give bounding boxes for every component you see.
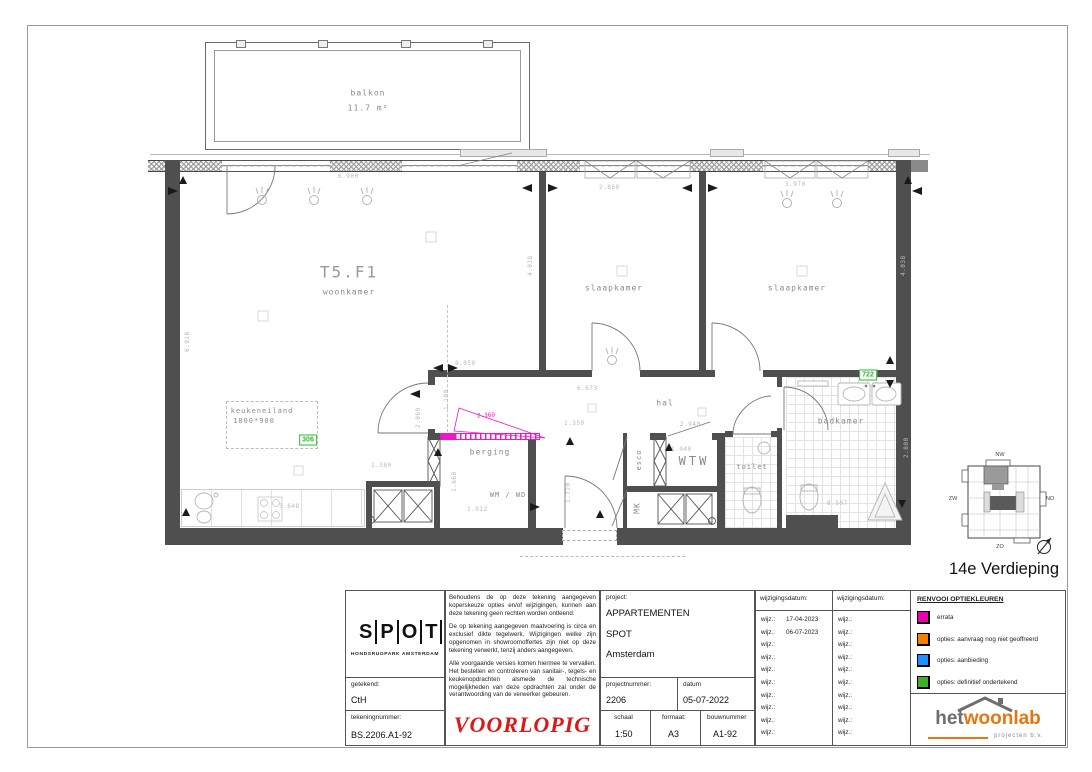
dimension-label: 3.648 — [279, 503, 300, 510]
bathroom-washbasin — [872, 383, 901, 405]
bedroom2-door-arc — [712, 323, 760, 371]
disclaimer-paragraph: Alle voorgaande versies komen hiermee te… — [449, 660, 596, 699]
reference-arrow — [168, 176, 922, 518]
wijz-row-label: wijz.: — [838, 679, 852, 686]
brand-woonlab: woonlab — [964, 708, 1041, 729]
disclaimer-text: Behoudens de op deze tekening aangegeven… — [449, 594, 596, 705]
dimension-label: 2.800 — [903, 437, 910, 458]
bathroom-wc — [800, 484, 818, 510]
schaal-label: schaal — [614, 714, 633, 721]
spot-logo-letter: P — [377, 620, 398, 644]
wijz-row-label: wijz.: — [761, 616, 775, 623]
spot-logo-letter: S — [356, 620, 377, 644]
balcony-label: balkon — [351, 89, 386, 98]
legend-label: opties: definitief ondertekend — [937, 679, 1018, 686]
brand-het: het — [935, 708, 964, 729]
getekend-label: getekend: — [351, 681, 380, 688]
datum-label: datum — [683, 681, 701, 688]
room-label-esco: esco — [635, 450, 643, 471]
kitchen-sink — [195, 493, 218, 523]
dimension-label: 1.350 — [564, 420, 585, 427]
legend-label: errata — [937, 614, 953, 621]
toilet-wc — [743, 487, 761, 513]
toilet-basin — [758, 442, 770, 454]
formaat-value: A3 — [668, 729, 679, 739]
mk-door-leaf — [612, 490, 627, 526]
formaat-label: formaat: — [662, 714, 686, 721]
wijz-date-value: 06-07-2023 — [786, 629, 818, 636]
room-label-bedroom2: slaapkamer — [768, 284, 826, 293]
shaft-box — [658, 494, 716, 525]
dimension-label: 8.050 — [455, 360, 476, 367]
bouwnummer-value: A1-92 — [713, 729, 737, 739]
legend-swatch — [917, 676, 930, 689]
room-label-living: woonkamer — [323, 288, 375, 297]
drawing-sheet: balkon 11.7 m² T5.F1 woonkamer slaapkame… — [0, 0, 1092, 772]
wijz-row-label: wijz.: — [838, 654, 852, 661]
wijz-row-label: wijz.: — [838, 641, 852, 648]
room-label-mk: MK — [633, 502, 642, 514]
dimension-label: 6.673 — [577, 385, 598, 392]
dimension-label: 2.940 — [680, 421, 701, 428]
wijz-row-label: wijz.: — [838, 717, 852, 724]
dimension-label: 1.012 — [467, 506, 488, 513]
toilet-door-arc — [733, 396, 771, 434]
legend-label: opties: aanbieding — [937, 657, 988, 664]
legend-swatch — [917, 633, 930, 646]
wijz-date-value: 17-04-2023 — [786, 616, 818, 623]
riser-shaft — [428, 437, 440, 486]
errata-triangle — [454, 408, 545, 438]
legend-swatch — [917, 654, 930, 667]
divider — [832, 610, 911, 611]
tilt-window-line — [457, 153, 512, 166]
locator-core — [990, 496, 1016, 510]
bathroom-shelf — [798, 381, 828, 386]
dimension-label: 1.100 — [443, 389, 450, 410]
wijz-row-label: wijz.: — [761, 641, 775, 648]
wijz-row-label: wijz.: — [838, 629, 852, 636]
dimension-label: 4.038 — [527, 255, 534, 276]
room-label-wtw: WTW — [679, 454, 710, 468]
room-label-toilet: toilet — [736, 463, 767, 471]
floor-title: 14e Verdieping — [942, 560, 1066, 579]
room-label-wmwd: WM / WD — [490, 491, 527, 499]
project-line: SPOT — [606, 629, 632, 640]
riser-shaft — [654, 437, 666, 486]
divider — [755, 610, 833, 611]
dimension-label: 1.720 — [565, 482, 572, 503]
wijzigingsdatum-header: wijzigingsdatum: — [837, 595, 885, 602]
dimension-label: 1.040 — [671, 446, 692, 453]
option-tag-kitchen: 306 — [299, 435, 317, 446]
wijzigingsdatum-header: wijzigingsdatum: — [760, 595, 808, 602]
project-label: project: — [606, 594, 627, 601]
bedroom1-door-arc — [592, 323, 640, 371]
wijz-row-label: wijz.: — [761, 629, 775, 636]
dimension-label: 2.060 — [415, 407, 422, 428]
room-label-bathroom: badkamer — [818, 417, 865, 426]
disclaimer-paragraph: Behoudens de op deze tekening aangegeven… — [449, 594, 596, 617]
disclaimer-paragraph: De op tekening aangegeven maatvoering is… — [449, 623, 596, 654]
wijz-row-label: wijz.: — [838, 666, 852, 673]
getekend-value: CtH — [351, 695, 367, 705]
wijz-row-label: wijz.: — [761, 666, 775, 673]
unit-code-label: T5.F1 — [320, 263, 378, 282]
errata-dimension: 2.360 — [477, 412, 495, 420]
wijz-row-label: wijz.: — [761, 679, 775, 686]
shaft-box — [368, 490, 433, 524]
dimension-label: 1.660 — [451, 471, 458, 492]
locator-highlight-unit — [984, 466, 1008, 484]
wijz-row-label: wijz.: — [761, 692, 775, 699]
project-line: APPARTEMENTEN — [606, 608, 690, 619]
tekeningnummer-value: BS.2206.A1-92 — [351, 730, 412, 740]
wijz-row-label: wijz.: — [838, 616, 852, 623]
entrance-door-arc — [565, 476, 617, 528]
brand-underline — [928, 737, 988, 739]
projectnummer-label: projectnummer: — [606, 681, 651, 688]
project-line: Amsterdam — [606, 649, 655, 660]
dimension-label: 1.380 — [371, 462, 392, 469]
voorlopig-stamp: VOORLOPIG — [445, 712, 600, 738]
balcony-area: 11.7 m² — [348, 104, 389, 113]
shower-tray — [868, 483, 902, 520]
kitchen-island-label: keukeneiland — [231, 407, 294, 415]
wijz-row-label: wijz.: — [838, 692, 852, 699]
locator-label-no: NO — [1046, 496, 1054, 502]
room-label-bedroom1: slaapkamer — [585, 284, 643, 293]
option-tag-bathroom: 722 — [859, 370, 877, 381]
dimension-label: 3.970 — [785, 181, 806, 188]
spot-logo-letter: O — [399, 620, 423, 644]
brand-wordmark: hetwoonlab — [910, 708, 1066, 730]
compass-icon — [1038, 538, 1052, 554]
datum-value: 05-07-2022 — [683, 695, 729, 705]
spot-logo-subtitle: HONDSRUGPARK AMSTERDAM — [350, 652, 440, 657]
projectnummer-value: 2206 — [606, 695, 626, 705]
esco-door-leaf — [613, 437, 627, 480]
wijz-row-label: wijz.: — [761, 654, 775, 661]
bathroom-washbasin — [838, 383, 870, 405]
dimension-label: 2.860 — [599, 184, 620, 191]
dimension-label: 6.900 — [338, 173, 359, 180]
wijz-row-label: wijz.: — [838, 704, 852, 711]
wijz-row-label: wijz.: — [761, 717, 775, 724]
locator-label-zo: ZO — [996, 544, 1004, 550]
bouwnummer-label: bouwnummer — [707, 714, 746, 721]
dimension-label: 4.038 — [900, 255, 907, 276]
brand-subtitle: projecten b.v. — [994, 733, 1044, 739]
legend-header: RENVOOI OPTIEKLEUREN — [917, 596, 1003, 603]
dimension-label: 8.507 — [827, 500, 848, 507]
spot-logo-letter: T — [422, 620, 442, 644]
schaal-value: 1:50 — [615, 729, 633, 739]
locator-label-nw: NW — [995, 452, 1004, 458]
locator-map — [962, 460, 1046, 543]
room-label-hall: hal — [656, 399, 673, 408]
wijz-row-label: wijz.: — [761, 729, 775, 736]
room-label-berging: berging — [470, 448, 511, 457]
kitchen-island-size: 1800*900 — [233, 417, 275, 425]
wijz-row-label: wijz.: — [838, 729, 852, 736]
legend-label: opties: aanvraag nog niet geoffreerd — [937, 636, 1038, 643]
locator-label-zw: ZW — [949, 496, 958, 502]
legend-swatch — [917, 611, 930, 624]
wijz-row-label: wijz.: — [761, 704, 775, 711]
dimension-label: 6.918 — [184, 331, 191, 352]
tekeningnummer-label: tekeningnummer: — [351, 714, 401, 721]
tilt-window-v — [585, 161, 868, 178]
spot-logo: SPOT — [356, 620, 442, 644]
